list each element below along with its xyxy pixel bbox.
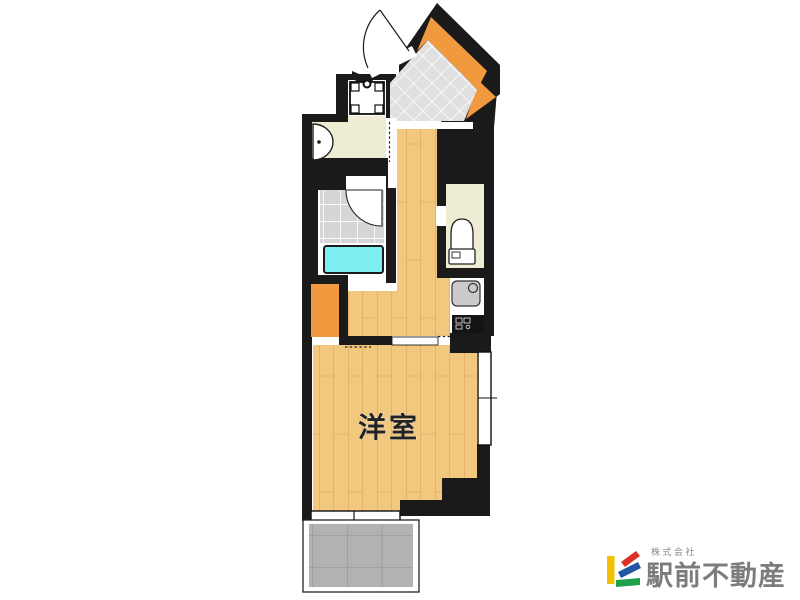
logo-bar-yellow [607,556,615,584]
wall-bath-right [386,190,396,283]
corridor-wood-1 [397,128,437,278]
bath-step-strip [348,278,390,291]
wall-basin-top [302,114,348,122]
entry-wood-threshold [392,122,473,129]
bath-door-threshold [346,176,386,190]
logo-mark-icon [607,551,641,587]
wall-room-topright [450,333,491,353]
wall-bath-left [302,186,318,283]
balcony [303,520,419,592]
kitchen-faucet-icon [469,284,478,293]
floor-plan-image: 洋室 株式会社 駅前不動産 [0,0,800,600]
logo-stripe-blue [618,562,641,578]
logo-company-prefix: 株式会社 [651,546,697,557]
floor-plan-svg: 洋室 株式会社 駅前不動産 [0,0,800,600]
corridor-wood-2 [397,278,452,336]
logo-company-name: 駅前不動産 [646,560,786,591]
sliding-partition [392,337,438,345]
orange-closet [311,284,339,337]
toilet-icon [449,219,475,264]
wall-orange-right [339,283,348,345]
washing-machine-icon [350,81,384,115]
wall-right-block [437,128,494,184]
corridor-wood-3 [348,291,397,336]
wall-room-right-lower [477,444,490,480]
balcony-tiles [309,524,413,587]
logo-stripe-green [616,578,640,587]
wall-room-left [302,283,312,521]
stove-icon [452,315,484,333]
toilet-door-opening [436,206,446,226]
bathtub-icon [324,246,383,273]
wall-track-left [344,336,392,345]
room-label: 洋室 [358,411,420,443]
wall-kitchen-right [484,176,494,336]
company-logo: 株式会社 駅前不動産 [607,546,786,591]
